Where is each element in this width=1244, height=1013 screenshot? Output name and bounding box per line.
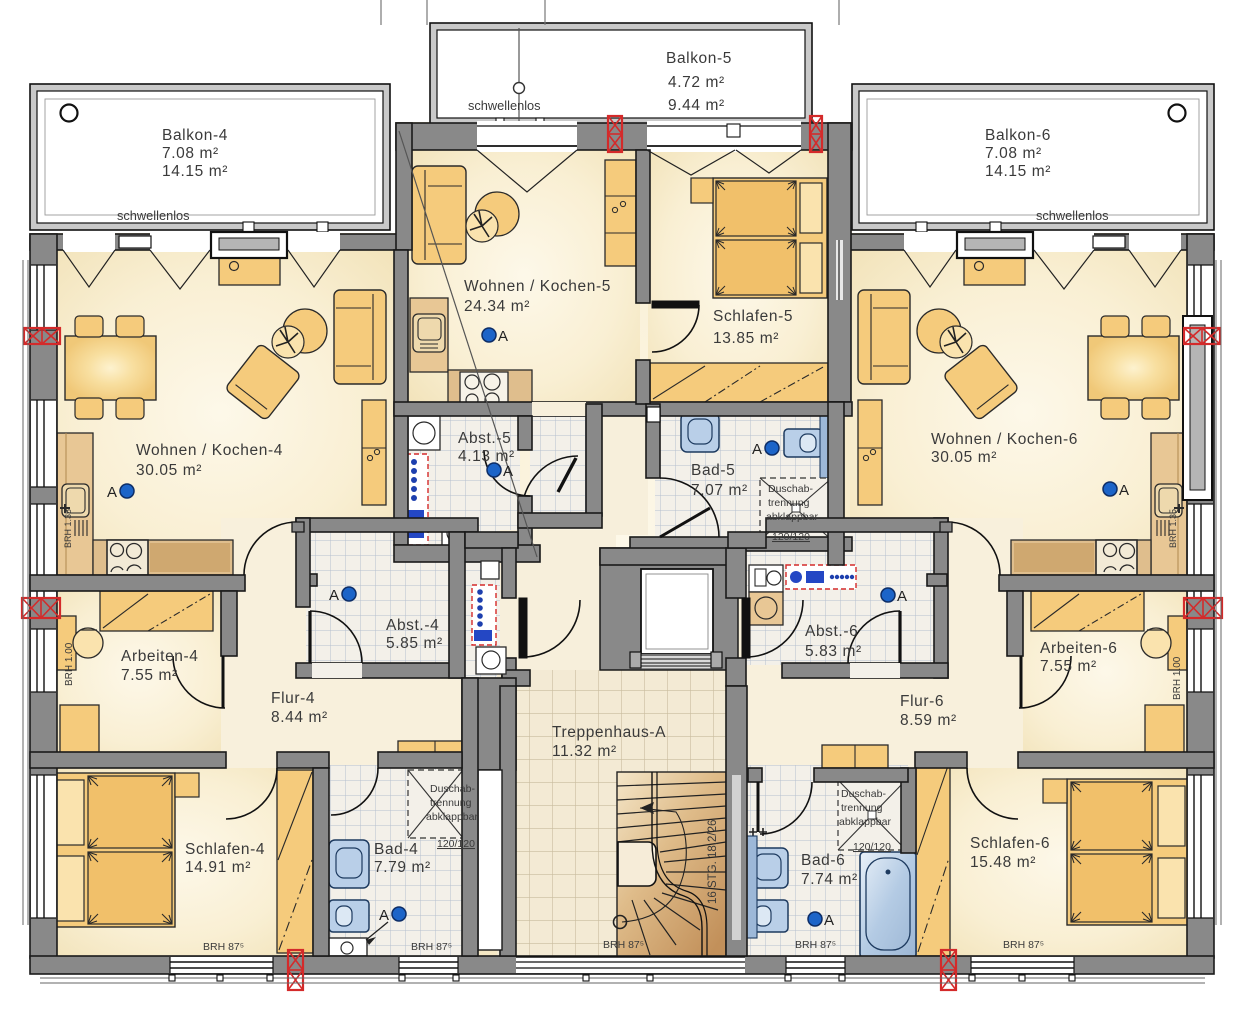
svg-text:15.48 m²: 15.48 m² [970, 854, 1036, 871]
svg-text:A: A [379, 907, 390, 924]
svg-text:Arbeiten-4: Arbeiten-4 [121, 648, 199, 665]
svg-text:7.07 m²: 7.07 m² [691, 482, 748, 499]
svg-text:A: A [824, 912, 835, 929]
svg-text:16 STG. 18,2/26: 16 STG. 18,2/26 [707, 820, 719, 904]
svg-text:schwellenlos: schwellenlos [1036, 208, 1109, 223]
svg-text:11.32 m²: 11.32 m² [552, 743, 617, 760]
svg-text:BRH 1.35: BRH 1.35 [1168, 509, 1178, 548]
svg-text:30.05 m²: 30.05 m² [136, 462, 202, 479]
svg-text:Treppenhaus-A: Treppenhaus-A [552, 724, 666, 741]
svg-text:Duschab-: Duschab- [768, 483, 813, 495]
svg-text:A: A [897, 588, 908, 605]
svg-text:A: A [503, 463, 514, 480]
svg-text:BRH 1.00: BRH 1.00 [64, 642, 75, 686]
svg-text:A: A [1119, 482, 1130, 499]
svg-text:Balkon-6: Balkon-6 [985, 127, 1051, 144]
svg-text:14.15 m²: 14.15 m² [162, 163, 228, 180]
svg-text:A: A [498, 328, 509, 345]
svg-text:Duschab-: Duschab- [841, 788, 886, 800]
svg-text:abklappbar: abklappbar [839, 816, 891, 828]
svg-text:schwellenlos: schwellenlos [468, 98, 541, 113]
svg-text:abklappbar: abklappbar [426, 811, 478, 823]
svg-text:4.72 m²: 4.72 m² [668, 74, 725, 91]
svg-text:Abst.-5: Abst.-5 [458, 430, 511, 447]
svg-text:120/120: 120/120 [437, 838, 475, 850]
svg-text:Duschab-: Duschab- [430, 783, 475, 795]
svg-text:14.91 m²: 14.91 m² [185, 859, 251, 876]
svg-text:4.13 m²: 4.13 m² [458, 448, 515, 465]
svg-text:BRH 87⁵: BRH 87⁵ [795, 939, 836, 951]
svg-text:7.74 m²: 7.74 m² [801, 871, 858, 888]
svg-text:5.85 m²: 5.85 m² [386, 635, 443, 652]
svg-text:Abst.-4: Abst.-4 [386, 617, 439, 634]
svg-text:schwellenlos: schwellenlos [117, 208, 190, 223]
svg-text:Balkon-5: Balkon-5 [666, 50, 732, 67]
svg-text:24.34 m²: 24.34 m² [464, 298, 530, 315]
svg-text:trennung: trennung [841, 802, 883, 814]
svg-text:BRH 87⁵: BRH 87⁵ [603, 939, 644, 951]
svg-text:8.44 m²: 8.44 m² [271, 709, 328, 726]
svg-text:Arbeiten-6: Arbeiten-6 [1040, 640, 1118, 657]
svg-text:8.59 m²: 8.59 m² [900, 712, 957, 729]
svg-text:Wohnen / Kochen-6: Wohnen / Kochen-6 [931, 431, 1078, 448]
svg-text:120/120: 120/120 [772, 531, 810, 543]
svg-text:Flur-4: Flur-4 [271, 690, 315, 707]
svg-text:abklappbar: abklappbar [766, 511, 818, 523]
svg-text:Bad-6: Bad-6 [801, 852, 845, 869]
svg-text:7.79 m²: 7.79 m² [374, 859, 431, 876]
svg-text:7.55 m²: 7.55 m² [1040, 658, 1097, 675]
svg-text:Flur-6: Flur-6 [900, 693, 944, 710]
svg-text:9.44 m²: 9.44 m² [668, 97, 725, 114]
svg-text:trennung: trennung [430, 797, 472, 809]
svg-text:trennung: trennung [768, 497, 810, 509]
svg-text:A: A [329, 587, 340, 604]
svg-text:A: A [107, 484, 118, 501]
svg-text:14.15 m²: 14.15 m² [985, 163, 1051, 180]
svg-text:30.05 m²: 30.05 m² [931, 449, 997, 466]
svg-text:Wohnen / Kochen-5: Wohnen / Kochen-5 [464, 278, 611, 295]
svg-text:7.08 m²: 7.08 m² [985, 145, 1042, 162]
svg-text:120/120: 120/120 [853, 841, 891, 853]
svg-text:Wohnen / Kochen-4: Wohnen / Kochen-4 [136, 442, 283, 459]
svg-text:Schlafen-4: Schlafen-4 [185, 841, 265, 858]
svg-text:7.08 m²: 7.08 m² [162, 145, 219, 162]
svg-text:BRH 1.35: BRH 1.35 [63, 509, 73, 548]
svg-text:Bad-4: Bad-4 [374, 841, 418, 858]
svg-text:Bad-5: Bad-5 [691, 462, 735, 479]
svg-text:A: A [752, 441, 763, 458]
svg-text:Balkon-4: Balkon-4 [162, 127, 228, 144]
svg-text:Abst.-6: Abst.-6 [805, 623, 858, 640]
svg-text:7.55 m²: 7.55 m² [121, 667, 178, 684]
svg-text:Schlafen-5: Schlafen-5 [713, 308, 793, 325]
svg-text:BRH 87⁵: BRH 87⁵ [203, 941, 244, 953]
svg-text:13.85 m²: 13.85 m² [713, 330, 779, 347]
svg-text:Schlafen-6: Schlafen-6 [970, 835, 1050, 852]
svg-text:BRH 87⁵: BRH 87⁵ [411, 941, 452, 953]
svg-text:5.83 m²: 5.83 m² [805, 643, 862, 660]
svg-text:BRH 1.00: BRH 1.00 [1172, 656, 1183, 700]
svg-text:BRH 87⁵: BRH 87⁵ [1003, 939, 1044, 951]
